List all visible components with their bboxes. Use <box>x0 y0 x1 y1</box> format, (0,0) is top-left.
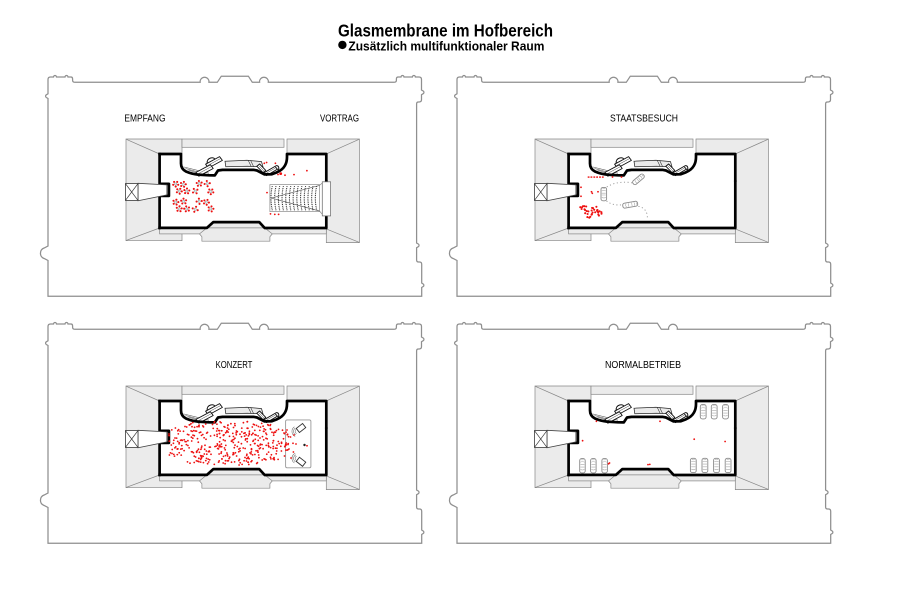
svg-text:EMPFANG: EMPFANG <box>124 114 165 125</box>
svg-text:NORMALBETRIEB: NORMALBETRIEB <box>605 360 681 371</box>
svg-text:STAATSBESUCH: STAATSBESUCH <box>610 114 678 125</box>
svg-text:VORTRAG: VORTRAG <box>320 114 359 125</box>
svg-text:Zusätzlich multifunktionaler R: Zusätzlich multifunktionaler Raum <box>348 38 544 53</box>
svg-text:Glasmembrane im Hofbereich: Glasmembrane im Hofbereich <box>338 20 553 40</box>
svg-text:KONZERT: KONZERT <box>216 360 253 371</box>
